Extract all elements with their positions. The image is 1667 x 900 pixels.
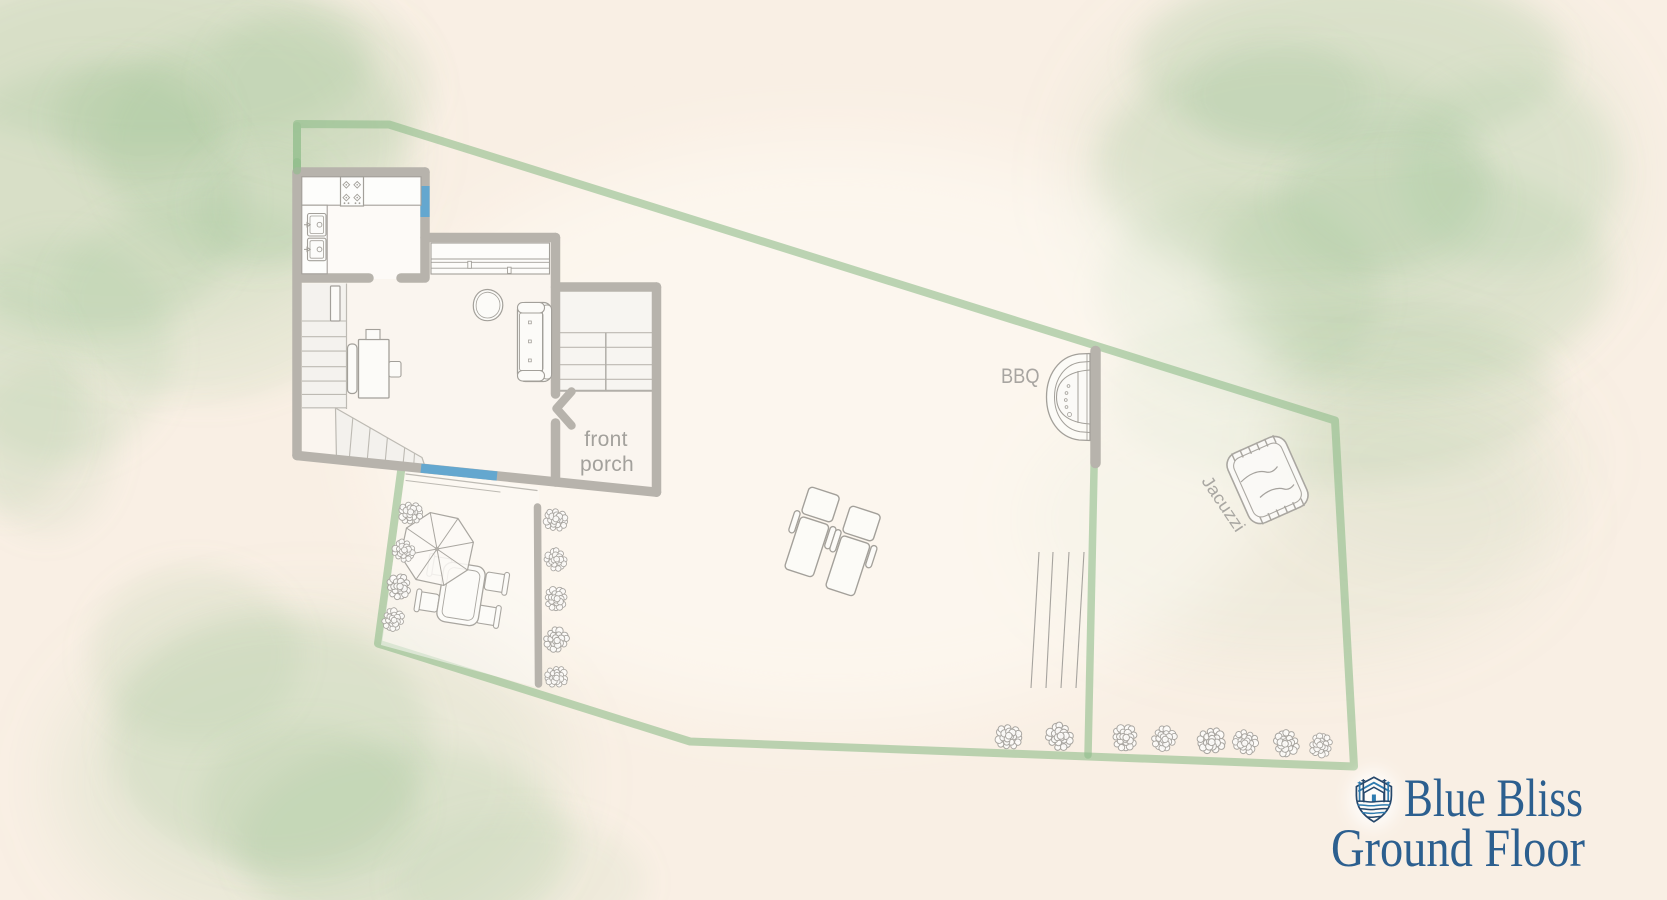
svg-text:front: front (584, 428, 628, 451)
svg-text:BBQ: BBQ (1001, 365, 1040, 388)
svg-text:Ground Floor: Ground Floor (1331, 818, 1585, 878)
svg-text:porch: porch (580, 453, 634, 476)
